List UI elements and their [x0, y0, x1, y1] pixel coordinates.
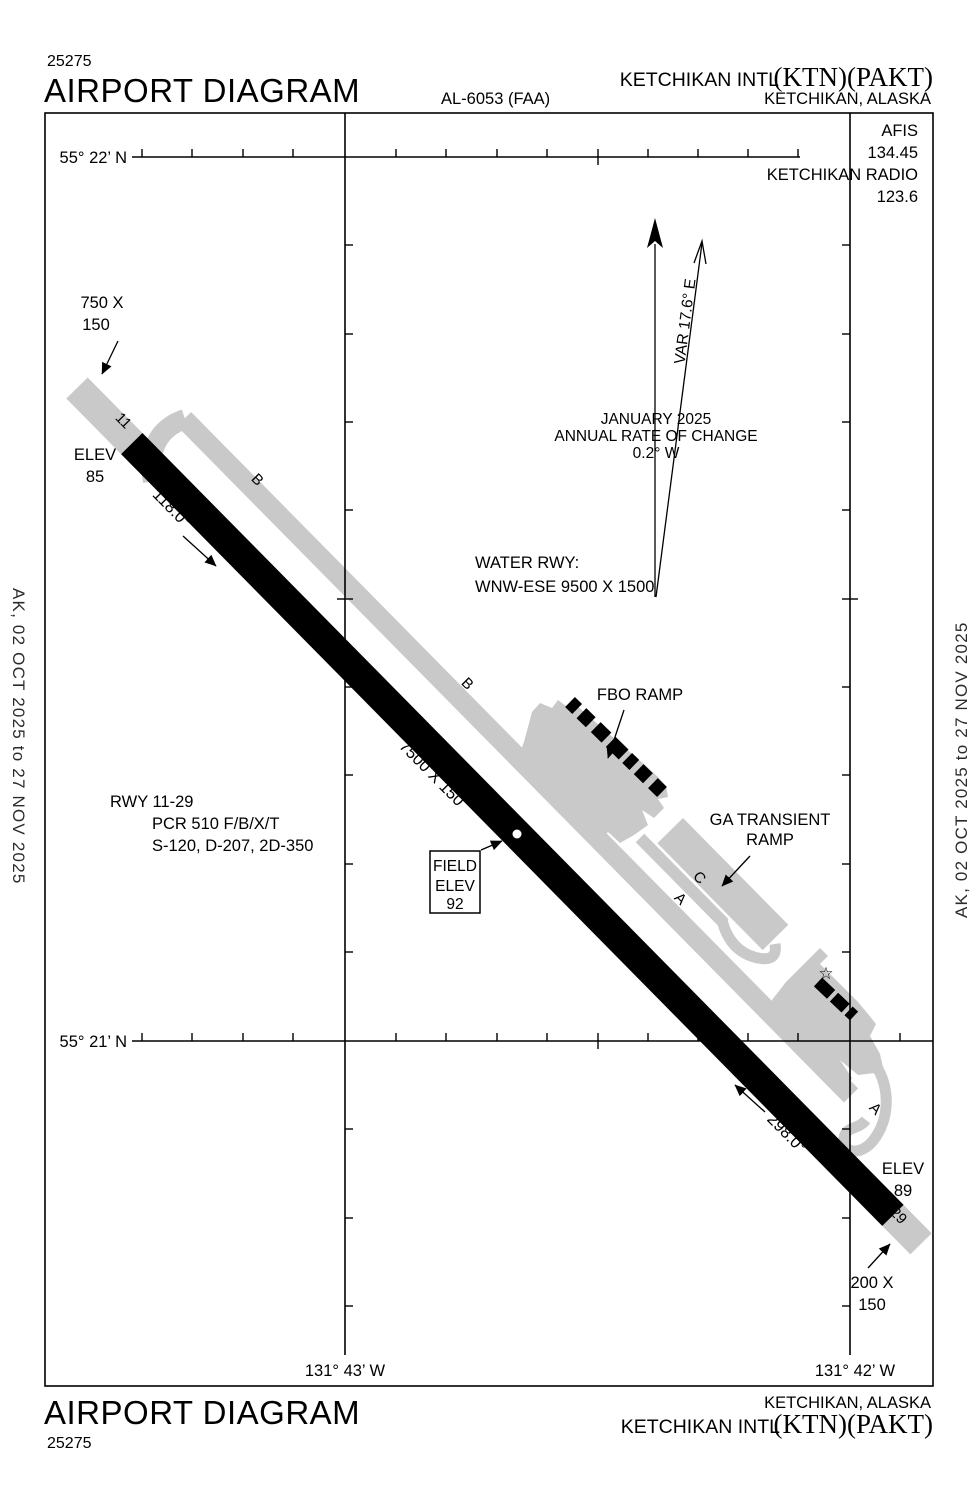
rwy-data-1: RWY 11-29	[110, 793, 193, 811]
water-rwy-1: WATER RWY:	[475, 554, 579, 572]
rwy-data-2: PCR 510 F/B/X/T	[152, 815, 279, 833]
elev11-value: 85	[86, 468, 104, 486]
page-title-bottom: AIRPORT DIAGRAM	[44, 1394, 360, 1431]
field-elev-1: FIELD	[433, 858, 477, 875]
beacon-star-icon: ☆	[818, 964, 833, 983]
overrun29-dim-1: 200 X	[850, 1274, 893, 1292]
elev11-label: ELEV	[74, 446, 116, 464]
afis-label: AFIS	[881, 122, 918, 140]
variation-rate-1: ANNUAL RATE OF CHANGE	[554, 428, 757, 445]
field-elev-2: ELEV	[435, 878, 475, 895]
variation-date: JANUARY 2025	[601, 411, 712, 428]
chart-number-bottom: 25275	[47, 1435, 92, 1452]
lat-top-label: 55° 22’ N	[60, 149, 127, 167]
effective-dates-left: AK, 02 OCT 2025 to 27 NOV 2025	[9, 588, 28, 885]
effective-dates-right: AK, 02 OCT 2025 to 27 NOV 2025	[952, 621, 971, 918]
chart-number-top: 25275	[47, 53, 92, 70]
rwy-data-3: S-120, D-207, 2D-350	[152, 837, 313, 855]
page-background	[0, 0, 978, 1500]
airport-name-bottom: KETCHIKAN INTL	[621, 1416, 780, 1438]
field-elev-3: 92	[446, 896, 463, 913]
overrun11-dim-1: 750 X	[80, 294, 123, 312]
city-state-top: KETCHIKAN, ALASKA	[764, 90, 931, 108]
airport-diagram-page: 55° 22’ N 55° 21’ N 131° 43’ W 131° 42’ …	[0, 0, 978, 1500]
ga-ramp-label-2: RAMP	[746, 831, 794, 849]
ga-ramp-label-1: GA TRANSIENT	[710, 811, 831, 829]
airport-codes-top: (KTN)(PAKT)	[774, 62, 933, 92]
radio-frequency: 123.6	[877, 188, 918, 206]
diagram-canvas: 55° 22’ N 55° 21’ N 131° 43’ W 131° 42’ …	[0, 0, 978, 1500]
lon-left-label: 131° 43’ W	[305, 1362, 386, 1380]
al-number: AL-6053 (FAA)	[441, 90, 550, 108]
airport-name-top: KETCHIKAN INTL	[620, 69, 779, 91]
overrun11-dim-2: 150	[82, 316, 110, 334]
variation-rate-2: 0.2° W	[633, 445, 680, 462]
elev29-value: 89	[894, 1182, 912, 1200]
page-title-top: AIRPORT DIAGRAM	[44, 72, 360, 109]
airport-codes-bottom: (KTN)(PAKT)	[774, 1409, 933, 1439]
field-elev-dot	[513, 830, 522, 839]
radio-label: KETCHIKAN RADIO	[767, 166, 918, 184]
lat-bottom-label: 55° 21’ N	[60, 1033, 127, 1051]
fbo-ramp-label: FBO RAMP	[597, 686, 683, 704]
afis-frequency: 134.45	[868, 144, 918, 162]
overrun29-dim-2: 150	[858, 1296, 886, 1314]
lon-right-label: 131° 42’ W	[815, 1362, 896, 1380]
elev29-label: ELEV	[882, 1160, 924, 1178]
water-rwy-2: WNW-ESE 9500 X 1500	[475, 578, 654, 596]
